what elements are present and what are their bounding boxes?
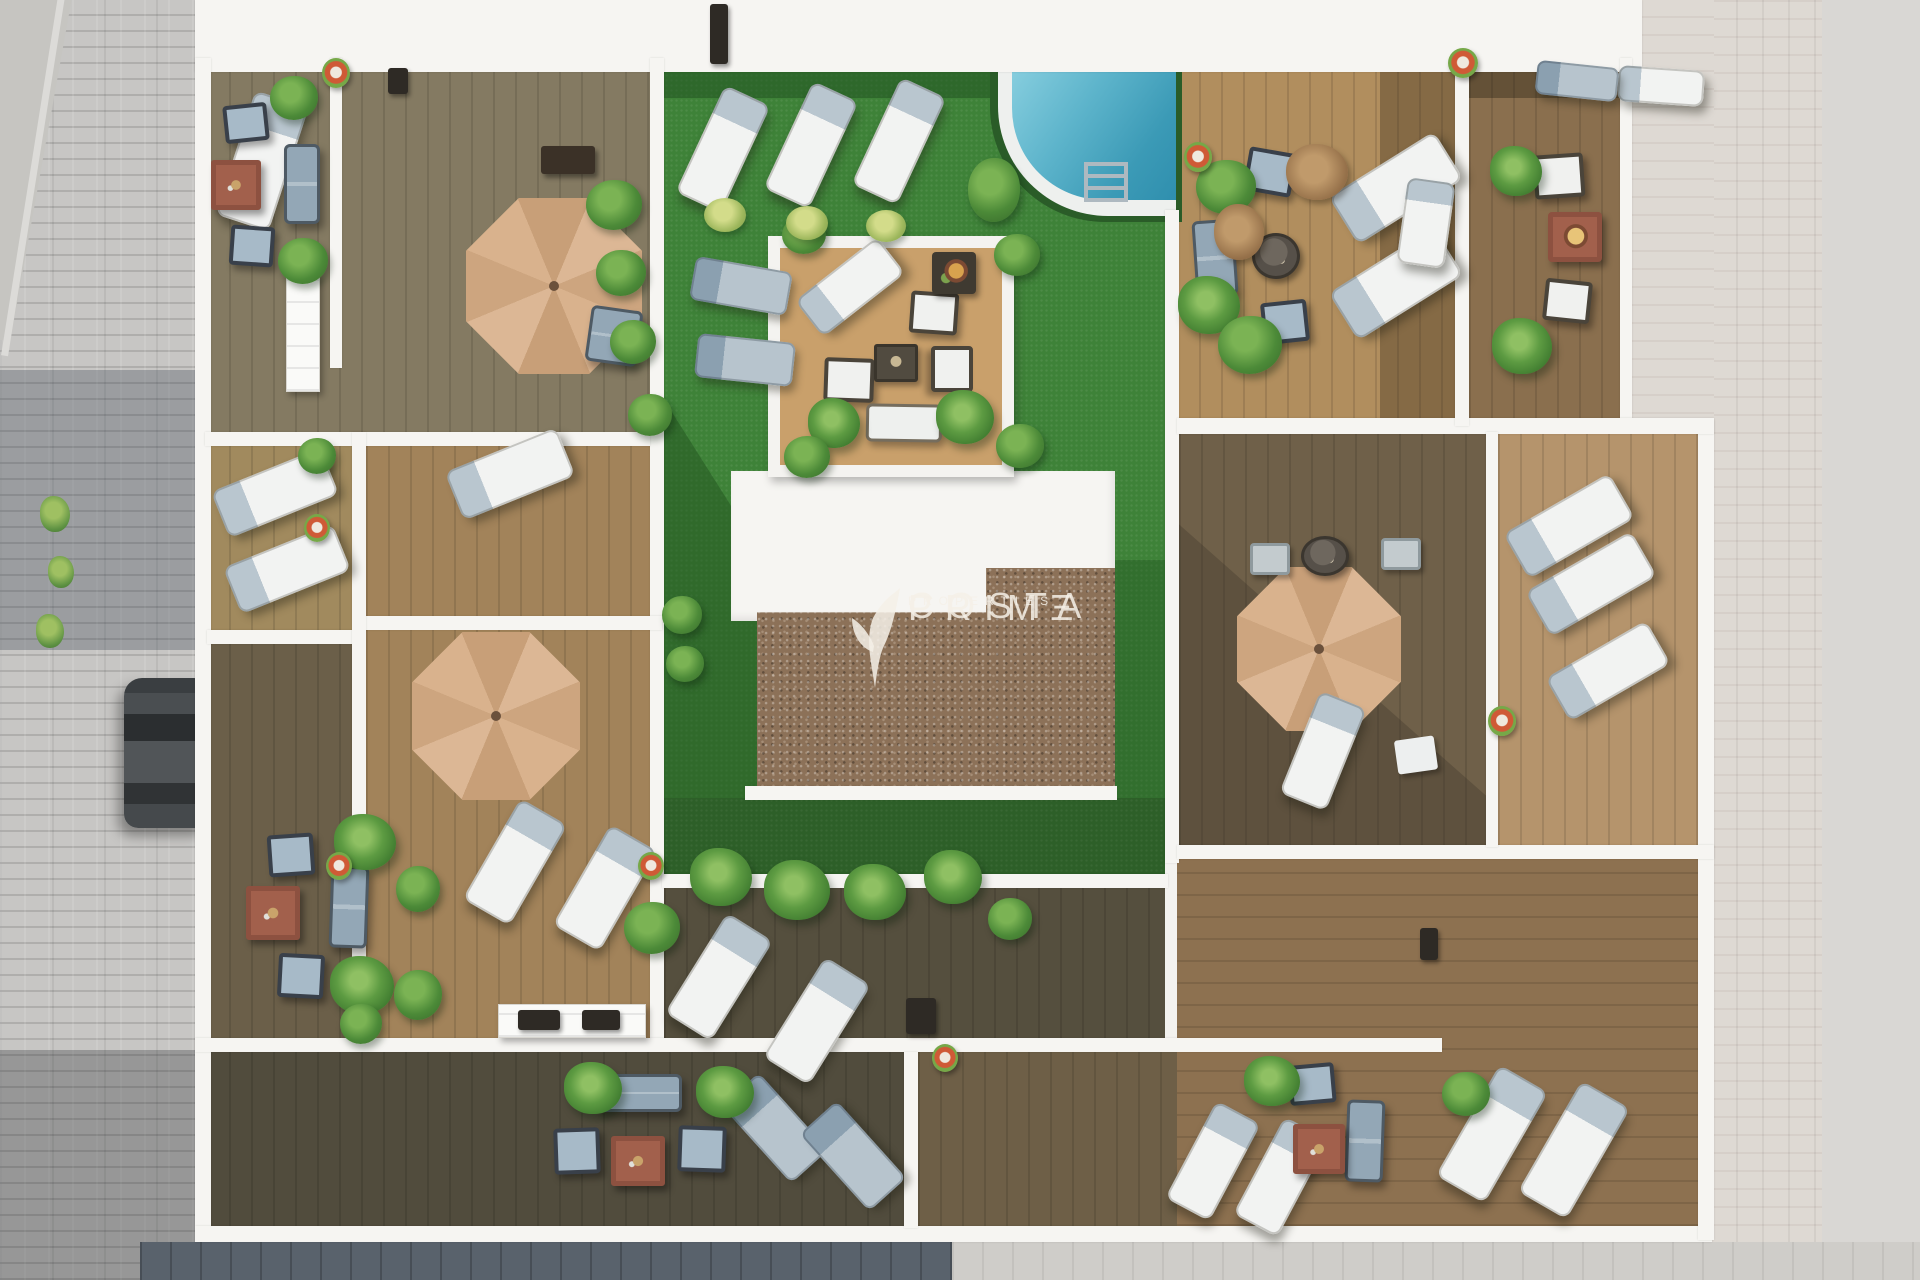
palm-plant (936, 390, 994, 444)
planter-bush (628, 394, 672, 436)
outdoor-counter (286, 274, 320, 392)
palm-plant (564, 1062, 622, 1114)
armchair-blue (677, 1125, 727, 1173)
palm-plant (690, 848, 752, 906)
fire-pit-table (1548, 212, 1602, 262)
planter-bush (996, 424, 1044, 468)
palm-plant (844, 864, 906, 920)
flower-pot (322, 58, 350, 88)
sun-lounger (665, 913, 773, 1042)
chair-gray (1250, 543, 1290, 575)
light-fixture (388, 68, 408, 94)
coffee-table-terracotta (211, 160, 261, 210)
planter-bush (610, 320, 656, 364)
flower-pot (1448, 48, 1478, 78)
light-fixture (1420, 928, 1438, 960)
vent-panel (518, 1010, 560, 1030)
sun-lounger-gray (689, 256, 793, 316)
planter-bush (278, 238, 328, 284)
coffee-table-terracotta (611, 1136, 665, 1186)
flower-pot (638, 852, 664, 880)
street-weed (40, 496, 70, 532)
chair-gray (1381, 538, 1421, 570)
light-bush (866, 210, 906, 242)
sun-lounger (851, 77, 946, 205)
sun-lounger (445, 427, 576, 520)
palm-plant (924, 850, 982, 904)
sun-lounger (763, 81, 858, 209)
palm-plant (1492, 318, 1552, 374)
grill-unit (906, 998, 936, 1034)
planter-bush (1218, 316, 1282, 374)
sun-lounger (675, 85, 770, 213)
planter-bush (968, 158, 1020, 222)
planter-bush (586, 180, 642, 230)
outdoor-sofa (284, 144, 320, 224)
light-bush (786, 206, 828, 240)
round-table (1301, 536, 1349, 576)
pool-ladder (1084, 162, 1128, 202)
planter-bush (340, 1004, 382, 1044)
light-bush (704, 198, 746, 232)
patio-umbrella (412, 632, 580, 800)
vent-panel (582, 1010, 620, 1030)
potted-plant (396, 866, 440, 912)
sun-lounger (1617, 65, 1705, 107)
planter-bush (994, 234, 1040, 276)
planter-bush (298, 438, 336, 474)
coffee-table-dark (874, 344, 918, 382)
palm-plant (696, 1066, 754, 1118)
armchair-blue (267, 832, 316, 877)
rooftop-plan-render: COSTA PRIMΞ PROPERTIES (0, 0, 1920, 1280)
planter-bush (988, 898, 1032, 940)
street-weed (36, 614, 64, 648)
flower-pot (932, 1044, 958, 1072)
armchair-white (909, 290, 960, 335)
bench (541, 146, 595, 174)
dried-plant (1286, 144, 1348, 200)
sun-lounger-gray (1534, 60, 1619, 102)
deck-mat (1394, 735, 1438, 774)
planter-bush (270, 76, 318, 120)
planter-bush (784, 436, 830, 478)
coffee-table-terracotta (246, 886, 300, 940)
planter-bush (666, 646, 704, 682)
armchair-white (1542, 278, 1593, 325)
outdoor-sofa-white (866, 403, 943, 442)
palm-plant (1490, 146, 1542, 196)
armchair-blue (229, 225, 276, 268)
flower-pot (326, 852, 352, 880)
palm-plant (764, 860, 830, 920)
armchair-white (931, 346, 973, 392)
street-weed (48, 556, 74, 588)
watermark-line3: PROPERTIES (908, 594, 1055, 608)
watermark: COSTA PRIMΞ PROPERTIES (846, 586, 1146, 736)
dried-plant (1214, 204, 1264, 260)
sun-lounger (463, 798, 568, 925)
armchair-blue (277, 953, 325, 999)
potted-plant (394, 970, 442, 1020)
sun-lounger-gray (694, 333, 796, 387)
coffee-table-terracotta (1293, 1124, 1345, 1174)
flower-pot (1184, 142, 1212, 172)
fire-pit-table (932, 252, 976, 294)
armchair-blue (553, 1127, 601, 1175)
sun-lounger (1545, 620, 1670, 721)
planter-bush (596, 250, 646, 296)
outdoor-sofa (1345, 1099, 1386, 1182)
leaf-logo-icon (846, 588, 904, 692)
sun-lounger (763, 957, 871, 1086)
armchair-blue (222, 102, 270, 144)
light-fixture (710, 4, 728, 64)
planter-bush (1442, 1072, 1490, 1116)
flower-pot (1488, 706, 1516, 736)
sun-lounger (223, 524, 351, 615)
planter-bush (662, 596, 702, 634)
armchair-white (823, 357, 875, 403)
planter-bush (624, 902, 680, 954)
palm-plant (1244, 1056, 1300, 1106)
flower-pot (304, 514, 330, 542)
